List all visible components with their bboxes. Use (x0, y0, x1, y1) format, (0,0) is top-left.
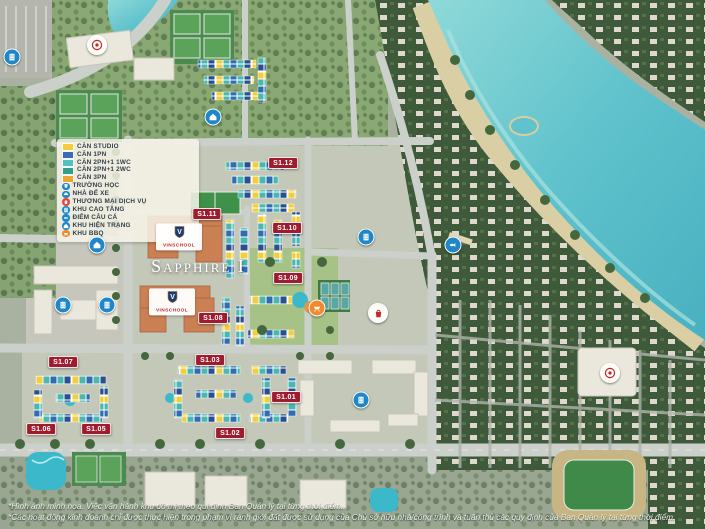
vinschool-logo[interactable]: V VINSCHOOL (149, 288, 195, 315)
house-icon (209, 113, 218, 122)
1pn-swatch (62, 151, 74, 159)
high-rise-marker[interactable] (4, 49, 21, 66)
high-rise-marker[interactable] (358, 229, 375, 246)
fish-icon (62, 214, 70, 222)
legend-row: ĐIỂM CÂU CÁ (62, 214, 194, 222)
legend-row: CĂN 1PN (62, 151, 194, 159)
footnote-line-2: *Các hoạt động kinh doanh chỉ được thực … (8, 513, 675, 521)
project-seal-icon (604, 367, 616, 379)
legend-label: CĂN 3PN (77, 175, 106, 181)
high-rise-marker[interactable] (353, 392, 370, 409)
svg-text:V: V (177, 229, 182, 236)
block-label-s1-01[interactable]: S1.01 (271, 391, 301, 403)
existing-area-marker[interactable] (89, 237, 106, 254)
legend-row: KHU CAO TẦNG (62, 206, 194, 214)
legend-row: CĂN STUDIO (62, 143, 194, 151)
legend-label: TRƯỜNG HỌC (73, 183, 120, 189)
masterplan-map: CĂN STUDIO CĂN 1PN CĂN 2PN+1 1WC CĂN 2PN… (0, 0, 705, 529)
high-rise-marker[interactable] (55, 297, 72, 314)
footnote-line-1: *Hình ảnh minh họa. Việc vận hành khu đô… (8, 502, 343, 510)
shopping-bag-icon (62, 198, 70, 206)
high-rise-icon (103, 301, 112, 310)
vinschool-name: VINSCHOOL (157, 244, 201, 249)
high-rise-icon (59, 301, 68, 310)
block-label-s1-11[interactable]: S1.11 (192, 208, 221, 220)
block-label-s1-09[interactable]: S1.09 (273, 272, 303, 284)
block-label-s1-03[interactable]: S1.03 (195, 354, 225, 366)
block-label-s1-05[interactable]: S1.05 (81, 423, 111, 435)
high-rise-icon (362, 233, 371, 242)
fishing-point-marker[interactable] (445, 237, 462, 254)
block-label-s1-06[interactable]: S1.06 (26, 423, 56, 435)
school-cap-icon (62, 183, 70, 191)
2pn1-2wc-swatch (62, 167, 74, 175)
legend-label: CĂN 2PN+1 2WC (77, 167, 131, 173)
high-rise-marker[interactable] (99, 297, 116, 314)
svg-text:V: V (170, 294, 175, 301)
legend-label: ĐIỂM CÂU CÁ (73, 215, 118, 221)
legend-label: KHU HIỆN TRẠNG (73, 223, 131, 229)
high-rise-icon (357, 396, 366, 405)
vinschool-shield-icon: V (174, 225, 185, 238)
commercial-marker[interactable] (368, 303, 388, 323)
house-icon (93, 241, 102, 250)
legend-label: CĂN 1PN (77, 152, 106, 158)
2pn1-1wc-swatch (62, 159, 74, 167)
block-label-s1-10[interactable]: S1.10 (272, 222, 302, 234)
legend-label: KHU CAO TẦNG (73, 207, 125, 213)
existing-area-marker[interactable] (205, 109, 222, 126)
vinschool-shield-icon: V (167, 290, 178, 303)
block-label-s1-12[interactable]: S1.12 (268, 157, 298, 169)
block-label-s1-02[interactable]: S1.02 (215, 427, 245, 439)
project-seal-icon (91, 39, 103, 51)
legend-label: THƯƠNG MẠI DỊCH VỤ (73, 199, 147, 205)
map-artwork (0, 0, 705, 529)
vinschool-logo[interactable]: V VINSCHOOL (156, 223, 202, 250)
project-title: Sapphire I (126, 257, 271, 275)
vinschool-name: VINSCHOOL (150, 309, 194, 314)
house-icon (62, 222, 70, 230)
project-seal-marker[interactable] (600, 363, 620, 383)
fish-icon (449, 241, 458, 250)
legend-row: THƯƠNG MẠI DỊCH VỤ (62, 198, 194, 206)
high-rise-icon (8, 53, 17, 62)
block-label-s1-07[interactable]: S1.07 (48, 356, 78, 368)
bbq-grill-icon (62, 230, 70, 238)
studio-swatch (62, 143, 74, 151)
car-icon (62, 191, 70, 199)
bbq-area-marker[interactable] (309, 300, 326, 317)
legend-label: NHÀ ĐỂ XE (73, 191, 110, 197)
bbq-grill-icon (313, 304, 322, 313)
legend-label: CĂN STUDIO (77, 144, 119, 150)
shopping-bag-icon (373, 308, 384, 319)
high-rise-icon (62, 206, 70, 214)
legend-label: CĂN 2PN+1 1WC (77, 160, 131, 166)
project-seal-marker[interactable] (87, 35, 107, 55)
block-label-s1-08[interactable]: S1.08 (198, 312, 228, 324)
